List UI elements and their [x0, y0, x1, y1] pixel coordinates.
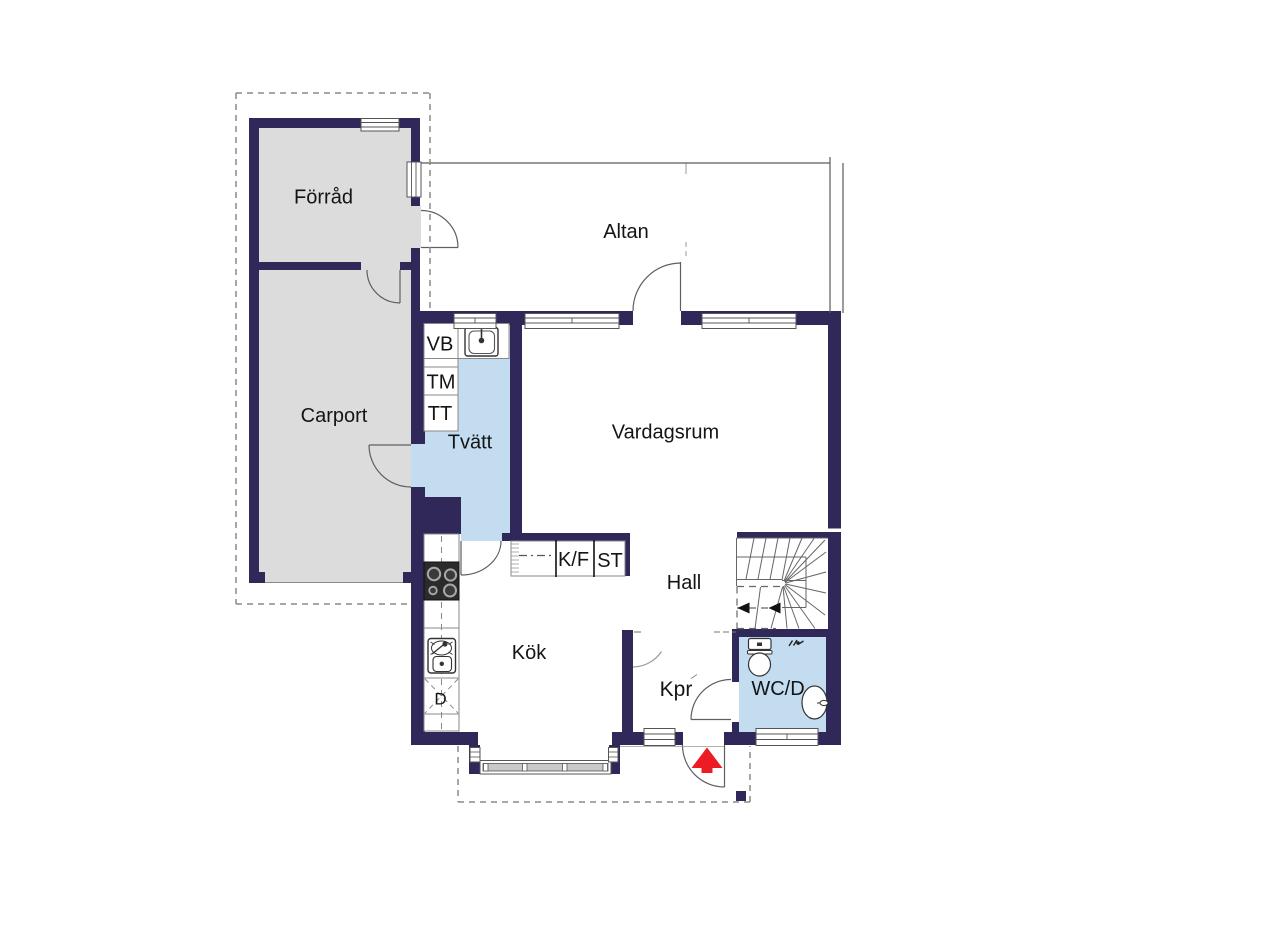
svg-text:Vardagsrum: Vardagsrum — [612, 422, 719, 444]
svg-text:Förråd: Förråd — [294, 187, 353, 209]
svg-text:K/F: K/F — [558, 549, 589, 571]
svg-text:Kök: Kök — [512, 642, 547, 664]
svg-text:TM: TM — [427, 372, 456, 394]
svg-text:Altan: Altan — [603, 221, 649, 243]
svg-text:VB: VB — [427, 334, 454, 356]
svg-text:TT: TT — [428, 403, 452, 425]
svg-text:Hall: Hall — [667, 572, 701, 594]
svg-text:ST: ST — [597, 550, 623, 572]
svg-text:Tvätt: Tvätt — [448, 432, 493, 454]
svg-text:Kpr: Kpr — [660, 678, 693, 701]
svg-text:D: D — [434, 690, 446, 709]
svg-text:Carport: Carport — [301, 405, 368, 427]
svg-text:WC/D: WC/D — [751, 678, 804, 700]
